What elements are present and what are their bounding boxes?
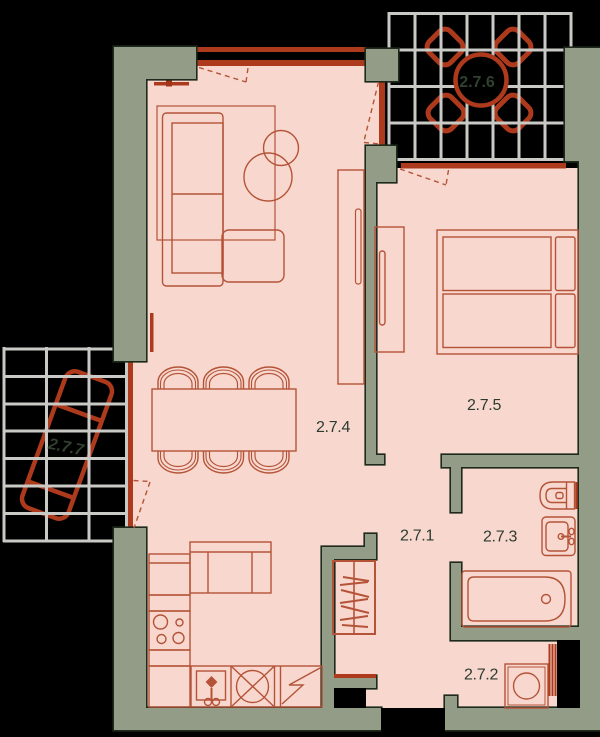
svg-text:2.7.6: 2.7.6 (459, 74, 495, 91)
svg-text:2.7.5: 2.7.5 (467, 397, 501, 414)
svg-text:2.7.3: 2.7.3 (483, 529, 517, 546)
svg-text:2.7.2: 2.7.2 (464, 667, 498, 684)
svg-text:2.7.4: 2.7.4 (316, 419, 350, 436)
svg-text:2.7.1: 2.7.1 (400, 528, 434, 545)
